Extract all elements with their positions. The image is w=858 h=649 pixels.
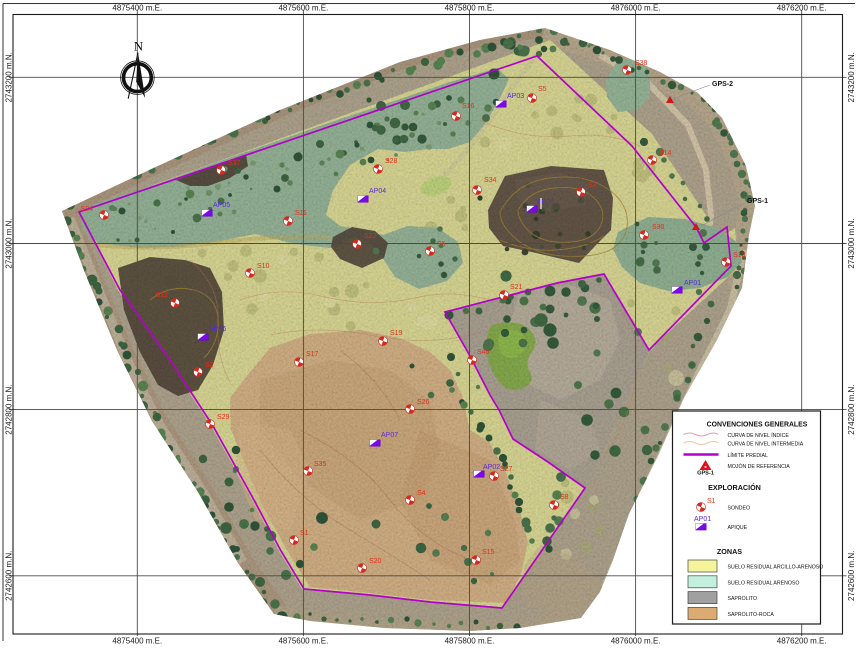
svg-text:S17: S17 — [306, 351, 319, 358]
svg-text:S28: S28 — [385, 158, 398, 165]
svg-text:AP08: AP08 — [537, 199, 554, 206]
svg-text:4876000 m.E.: 4876000 m.E. — [611, 4, 661, 13]
svg-text:S13: S13 — [733, 252, 746, 259]
svg-text:S1: S1 — [707, 498, 716, 505]
svg-text:AP03: AP03 — [507, 93, 524, 100]
svg-text:S2: S2 — [205, 362, 214, 369]
svg-text:4876200 m.E.: 4876200 m.E. — [777, 637, 827, 646]
svg-text:2742600 m.N.: 2742600 m.N. — [847, 551, 856, 601]
svg-text:2742800 m.N.: 2742800 m.N. — [5, 384, 14, 434]
svg-text:LÍMITE PREDIAL: LÍMITE PREDIAL — [728, 452, 768, 459]
svg-text:4876200 m.E.: 4876200 m.E. — [777, 4, 827, 13]
svg-text:CONVENCIONES GENERALES: CONVENCIONES GENERALES — [707, 422, 808, 429]
svg-text:SAPROLITO: SAPROLITO — [728, 596, 758, 602]
svg-text:4876000 m.E.: 4876000 m.E. — [611, 637, 661, 646]
svg-text:S16: S16 — [462, 103, 475, 110]
svg-text:S21: S21 — [510, 284, 523, 291]
svg-text:S11: S11 — [295, 210, 307, 217]
svg-text:AP01: AP01 — [694, 516, 711, 523]
svg-text:S34: S34 — [484, 177, 497, 184]
svg-text:S19: S19 — [390, 330, 403, 337]
svg-text:S5: S5 — [538, 86, 547, 93]
svg-text:4875800 m.E.: 4875800 m.E. — [445, 4, 495, 13]
svg-text:S10: S10 — [257, 263, 270, 270]
svg-text:S3: S3 — [588, 182, 597, 189]
svg-text:4875600 m.E.: 4875600 m.E. — [278, 4, 328, 13]
svg-text:4875800 m.E.: 4875800 m.E. — [445, 637, 495, 646]
svg-text:AP05: AP05 — [213, 202, 230, 209]
svg-text:S14: S14 — [659, 150, 672, 157]
svg-text:EXPLORACIÓN: EXPLORACIÓN — [708, 483, 761, 492]
svg-text:CURVA DE NIVEL INTERMEDIA: CURVA DE NIVEL INTERMEDIA — [728, 442, 804, 448]
svg-text:GPS-2: GPS-2 — [712, 81, 733, 88]
svg-text:SONDEO: SONDEO — [728, 506, 750, 512]
svg-text:GPS-1: GPS-1 — [747, 198, 768, 205]
svg-text:AP02: AP02 — [483, 464, 500, 471]
svg-text:4875600 m.E.: 4875600 m.E. — [278, 637, 328, 646]
svg-text:ZONAS: ZONAS — [717, 547, 742, 556]
svg-text:S8: S8 — [560, 494, 569, 501]
svg-text:SUELO RESIDUAL ARENOSO: SUELO RESIDUAL ARENOSO — [728, 580, 800, 586]
svg-text:S20: S20 — [369, 558, 382, 565]
svg-text:CURVA DE NIVEL ÍNDICE: CURVA DE NIVEL ÍNDICE — [728, 432, 790, 439]
svg-text:2743000 m.N.: 2743000 m.N. — [847, 218, 856, 268]
svg-text:S30: S30 — [652, 224, 665, 231]
svg-text:S12: S12 — [156, 292, 169, 299]
svg-text:S29: S29 — [217, 414, 230, 421]
svg-text:S35: S35 — [314, 461, 327, 468]
svg-text:S4: S4 — [417, 490, 426, 497]
svg-text:S6: S6 — [437, 241, 446, 248]
svg-text:S1: S1 — [300, 530, 309, 537]
svg-text:SAPROLITO-ROCA: SAPROLITO-ROCA — [728, 612, 775, 618]
svg-text:APIQUE: APIQUE — [728, 525, 748, 531]
svg-text:AP01: AP01 — [684, 280, 701, 287]
svg-text:S37: S37 — [228, 160, 241, 167]
svg-text:SUELO RESIDUAL ARCILLO-ARENOSO: SUELO RESIDUAL ARCILLO-ARENOSO — [728, 565, 824, 571]
svg-text:2743200 m.N.: 2743200 m.N. — [5, 52, 14, 102]
svg-text:2742600 m.N.: 2742600 m.N. — [5, 551, 14, 601]
svg-text:N: N — [134, 39, 144, 54]
svg-text:4875400 m.E.: 4875400 m.E. — [112, 4, 162, 13]
svg-text:S15: S15 — [482, 549, 495, 556]
svg-text:GPS-1: GPS-1 — [697, 471, 714, 477]
svg-text:S27: S27 — [500, 466, 513, 473]
svg-text:2743000 m.N.: 2743000 m.N. — [5, 218, 14, 268]
svg-text:2742800 m.N.: 2742800 m.N. — [847, 384, 856, 434]
svg-text:S40: S40 — [477, 349, 490, 356]
svg-text:MOJÓN DE REFERENCIA: MOJÓN DE REFERENCIA — [728, 463, 791, 470]
svg-text:S24: S24 — [81, 206, 94, 213]
svg-text:AP04: AP04 — [369, 188, 386, 195]
svg-text:2743200 m.N.: 2743200 m.N. — [847, 52, 856, 102]
svg-text:S26: S26 — [417, 399, 430, 406]
svg-text:S38: S38 — [635, 60, 648, 67]
svg-text:AP06: AP06 — [209, 326, 226, 333]
svg-text:AP07: AP07 — [381, 432, 398, 439]
svg-text:4875400 m.E.: 4875400 m.E. — [112, 637, 162, 646]
svg-text:S22: S22 — [364, 233, 377, 240]
